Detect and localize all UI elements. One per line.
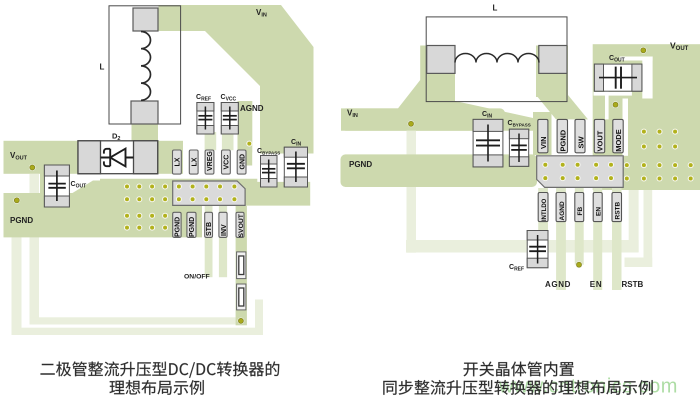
svg-text:LX: LX	[175, 157, 182, 166]
svg-text:EN: EN	[596, 207, 603, 216]
svg-text:PGND: PGND	[175, 217, 182, 237]
svg-text:INV: INV	[221, 224, 228, 236]
svg-text:FB: FB	[577, 207, 584, 216]
svg-text:AGND: AGND	[545, 280, 571, 289]
svg-text:INTLDO: INTLDO	[542, 198, 548, 221]
svg-text:VIN: VIN	[539, 136, 548, 149]
svg-text:LX: LX	[191, 157, 198, 166]
svg-text:L: L	[493, 4, 498, 13]
svg-text:STB: STB	[206, 222, 213, 236]
svg-text:AGND: AGND	[559, 201, 566, 220]
svg-text:ON/OFF: ON/OFF	[184, 274, 210, 281]
svg-text:PGND: PGND	[349, 160, 372, 169]
svg-text:PGND: PGND	[10, 216, 33, 225]
svg-text:VREG: VREG	[207, 151, 214, 171]
svg-text:SW: SW	[576, 135, 585, 148]
svg-text:L: L	[100, 63, 105, 72]
svg-text:EN: EN	[590, 280, 603, 289]
svg-text:RSTB: RSTB	[614, 202, 621, 220]
svg-text:SVOUT: SVOUT	[238, 213, 245, 237]
svg-text:PGND: PGND	[559, 129, 568, 151]
svg-text:GND: GND	[239, 154, 246, 170]
svg-text:RSTB: RSTB	[622, 280, 644, 289]
svg-text:PGND: PGND	[189, 217, 196, 237]
svg-text:VCC: VCC	[224, 155, 231, 170]
svg-text:MODE: MODE	[614, 129, 623, 152]
svg-text:AGND: AGND	[240, 104, 264, 113]
svg-text:VOUT: VOUT	[596, 130, 605, 151]
